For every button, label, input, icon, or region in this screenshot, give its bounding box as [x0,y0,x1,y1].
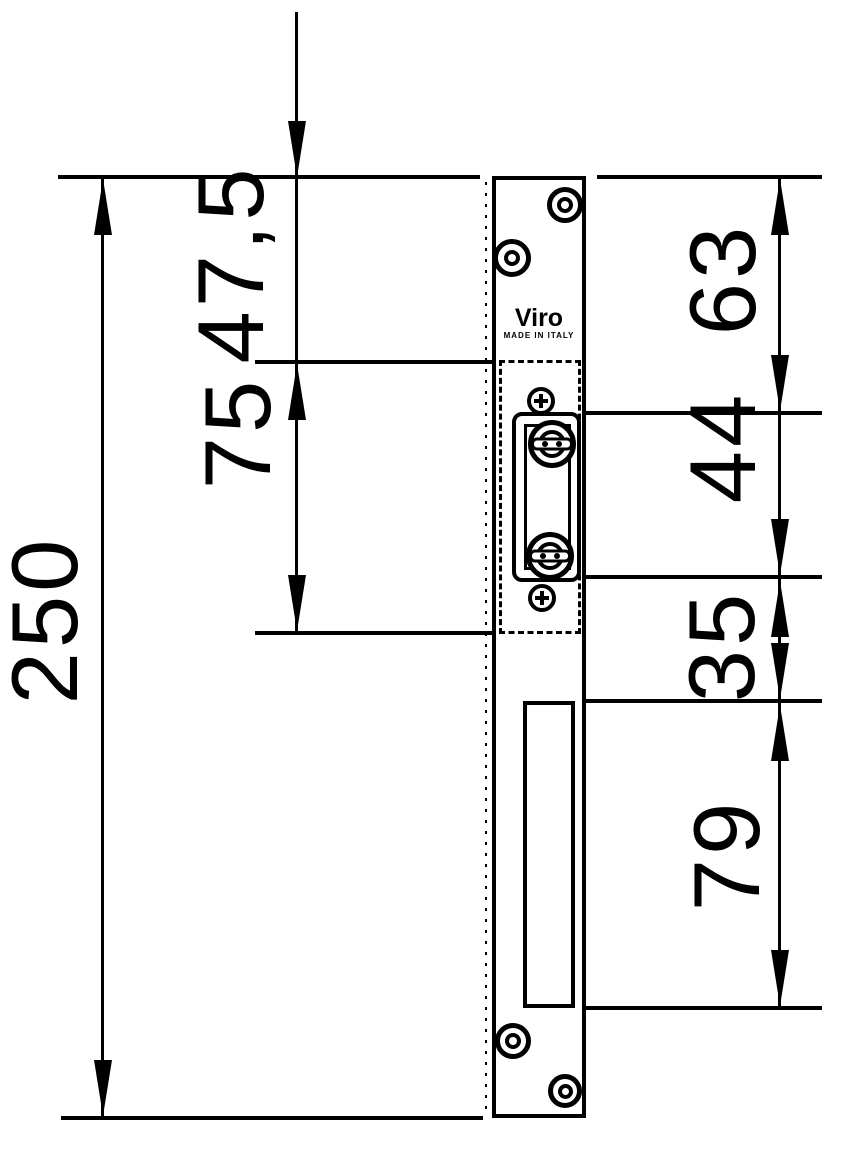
big-screw-top [528,420,576,468]
screw-cross-icon [539,394,543,408]
screw-hole-bottom-right [548,1074,582,1108]
arrowhead-47-5-bottom [288,364,306,420]
logo-block: Viro MADE IN ITALY [492,306,586,341]
dim-label-35: 35 [675,590,769,703]
dim-label-47-5: 47,5 [184,165,278,364]
lock-cutout [523,701,575,1008]
dim-label-75: 75 [191,377,285,490]
arrowhead-top-leader [288,121,306,177]
faceplate-left-edge-ticks [485,182,487,1112]
dim-label-63: 63 [676,223,770,336]
extension-line-79-bottom [580,1006,822,1010]
dimension-line-250 [101,177,104,1118]
extension-line-44-bottom [558,575,822,579]
extension-line-75-bottom [255,631,492,635]
arrowhead-44-bottom [771,519,789,575]
dim-label-overall: 250 [0,536,92,705]
arrowhead-79-top [771,705,789,761]
brand-logo-text: Viro [492,306,586,331]
arrowhead-75-bottom [288,575,306,631]
arrowhead-250-top [94,179,112,235]
screw-dot-icon [556,441,562,447]
dim-label-79: 79 [680,799,774,912]
dim-label-44: 44 [676,391,770,504]
big-screw-slot-icon [531,438,573,451]
screw-hole-lower-left-inner [505,1033,521,1049]
screw-hole-upper-left [493,239,531,277]
small-screw-bottom [528,584,556,612]
arrowhead-250-bottom [94,1060,112,1116]
screw-hole-top-right-inner [557,197,573,213]
screw-hole-top-right [547,187,583,223]
screw-hole-lower-left [495,1023,531,1059]
small-screw-top [527,387,555,415]
screw-dot-icon [542,441,548,447]
made-in-text: MADE IN ITALY [492,331,586,341]
technical-drawing: 250 47,5 75 63 44 35 79 Viro MADE IN ITA… [0,0,863,1173]
arrowhead-79-bottom [771,950,789,1006]
screw-dot-icon [540,553,546,559]
screw-cross-icon [540,591,544,605]
bottom-reference-line [61,1116,483,1120]
screw-hole-upper-left-inner [504,250,520,266]
big-screw-slot-icon [529,550,571,563]
screw-dot-icon [554,553,560,559]
screw-hole-bottom-right-inner [558,1084,573,1099]
big-screw-bottom [526,532,574,580]
